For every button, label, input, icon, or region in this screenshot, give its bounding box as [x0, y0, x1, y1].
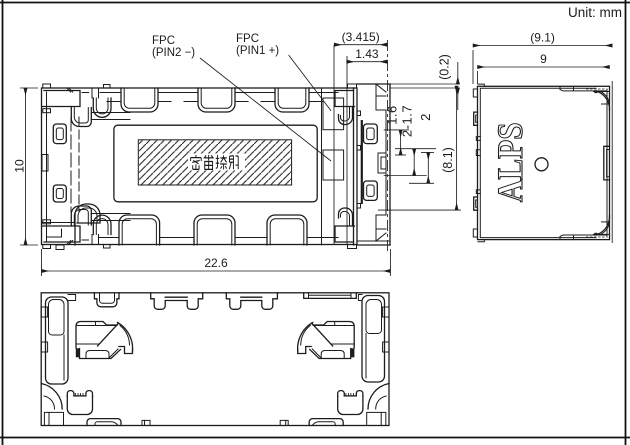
svg-text:(0.2): (0.2)	[438, 54, 452, 80]
svg-text:FPC: FPC	[152, 35, 175, 47]
svg-text:(PIN2 −): (PIN2 −)	[152, 47, 195, 59]
svg-text:(PIN1 +): (PIN1 +)	[236, 45, 279, 57]
svg-text:2-1.7: 2-1.7	[400, 105, 415, 137]
svg-text:1.43: 1.43	[355, 47, 379, 61]
svg-text:ALPS: ALPS	[490, 122, 530, 202]
svg-text:1.6: 1.6	[385, 105, 400, 125]
svg-text:(8.1): (8.1)	[441, 147, 455, 173]
svg-text:(3.415): (3.415)	[342, 30, 380, 44]
svg-text:(9.1): (9.1)	[530, 31, 555, 45]
svg-text:FPC: FPC	[236, 33, 259, 45]
svg-text:Unit: mm: Unit: mm	[568, 5, 622, 20]
svg-text:10: 10	[13, 159, 27, 173]
svg-text:9: 9	[540, 52, 547, 66]
svg-text:2: 2	[418, 113, 433, 121]
svg-text:22.6: 22.6	[204, 256, 228, 270]
